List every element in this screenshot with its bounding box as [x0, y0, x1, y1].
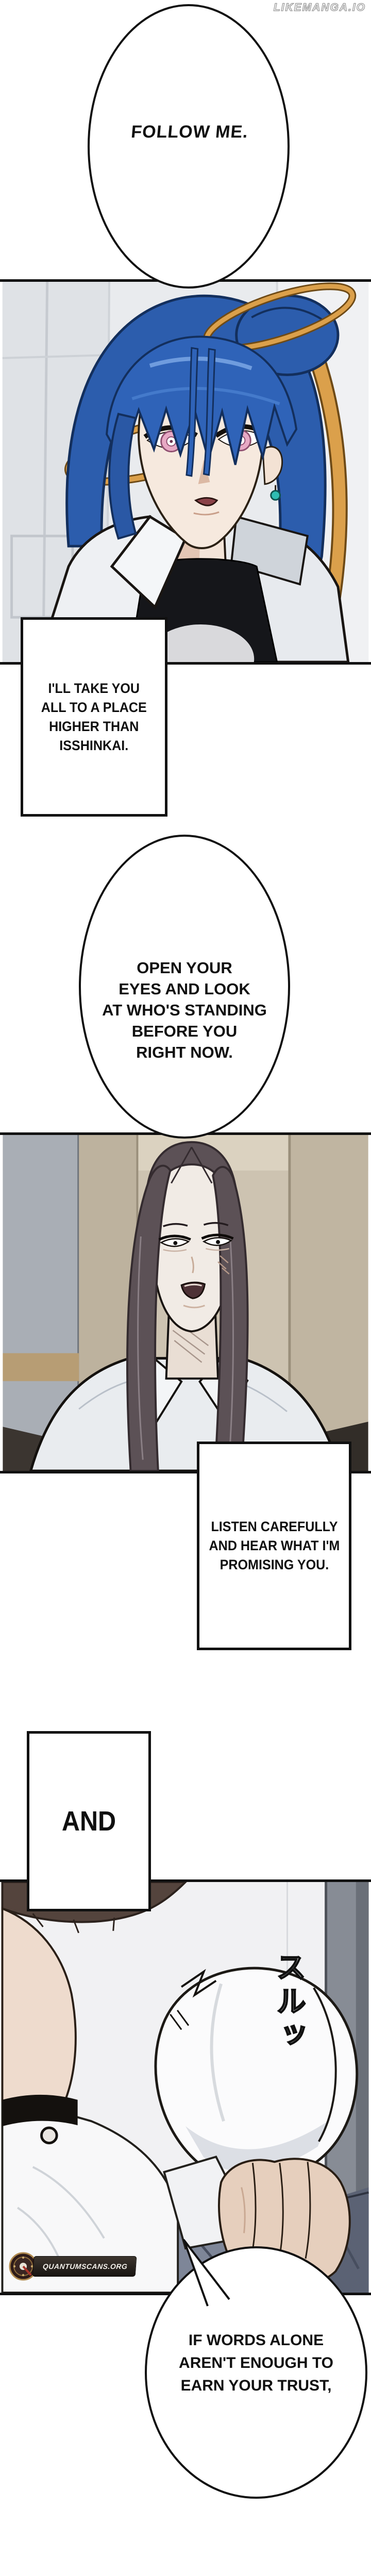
bubble-text-line: AT WHO'S STANDING [102, 999, 267, 1021]
bubble-tail [178, 2235, 240, 2307]
caption-line: HIGHER THAN [49, 717, 139, 736]
bubble-text-line: EARN YOUR TRUST, [181, 2375, 332, 2397]
bubble-text-line: OPEN YOUR [137, 957, 232, 978]
caption-line: AND HEAR WHAT I'M [209, 1536, 340, 1555]
caption-box-listen: LISTEN CAREFULLY AND HEAR WHAT I'M PROMI… [197, 1442, 351, 1650]
sfx-slip-text: スルッ [267, 1952, 310, 2054]
caption-box-and: AND [27, 1731, 151, 1911]
panel-long-haired-character [0, 1132, 371, 1473]
scan-site-name: QUANTUMSCANS.ORG [42, 2262, 127, 2270]
caption-line: AND [62, 1805, 116, 1837]
bubble-text-line: RIGHT NOW. [136, 1042, 233, 1063]
site-watermark: LIKEMANGA.IO [274, 2, 366, 14]
floor-strip [3, 1353, 79, 1381]
teal-earring [271, 491, 280, 500]
choker-ring-pendant [42, 2128, 57, 2143]
bubble-text-line: AREN'T ENOUGH TO [179, 2352, 333, 2375]
bubble-text-line: IF WORDS ALONE [189, 2329, 324, 2352]
panel3-art [0, 1882, 371, 2293]
speech-bubble-open-eyes: OPEN YOUR EYES AND LOOK AT WHO'S STANDIN… [79, 835, 290, 1139]
bubble-text-line: BEFORE YOU [132, 1021, 237, 1042]
caption-line: ALL TO A PLACE [41, 698, 147, 717]
panel-clutching-hat [0, 1879, 371, 2295]
speech-bubble-follow: FOLLOW ME. [88, 4, 290, 289]
caption-line: LISTEN CAREFULLY [211, 1517, 338, 1536]
scan-group-badge: QUANTUMSCANS.ORG [8, 2251, 136, 2281]
bubble-text-line: FOLLOW ME. [130, 122, 249, 142]
panel2-art [0, 1135, 371, 1471]
scan-site-banner: QUANTUMSCANS.ORG [32, 2256, 137, 2277]
caption-line: PROMISING YOU. [220, 1555, 329, 1574]
bubble-text-line: EYES AND LOOK [119, 978, 250, 999]
panel1-art [0, 282, 371, 662]
manga-page: LIKEMANGA.IO FOLLOW ME. [0, 0, 371, 2576]
caption-box-take-you: I'LL TAKE YOU ALL TO A PLACE HIGHER THAN… [21, 617, 167, 817]
caption-line: ISSHINKAI. [60, 736, 129, 755]
caption-line: I'LL TAKE YOU [48, 679, 140, 698]
panel-blue-haired-character [0, 279, 371, 665]
